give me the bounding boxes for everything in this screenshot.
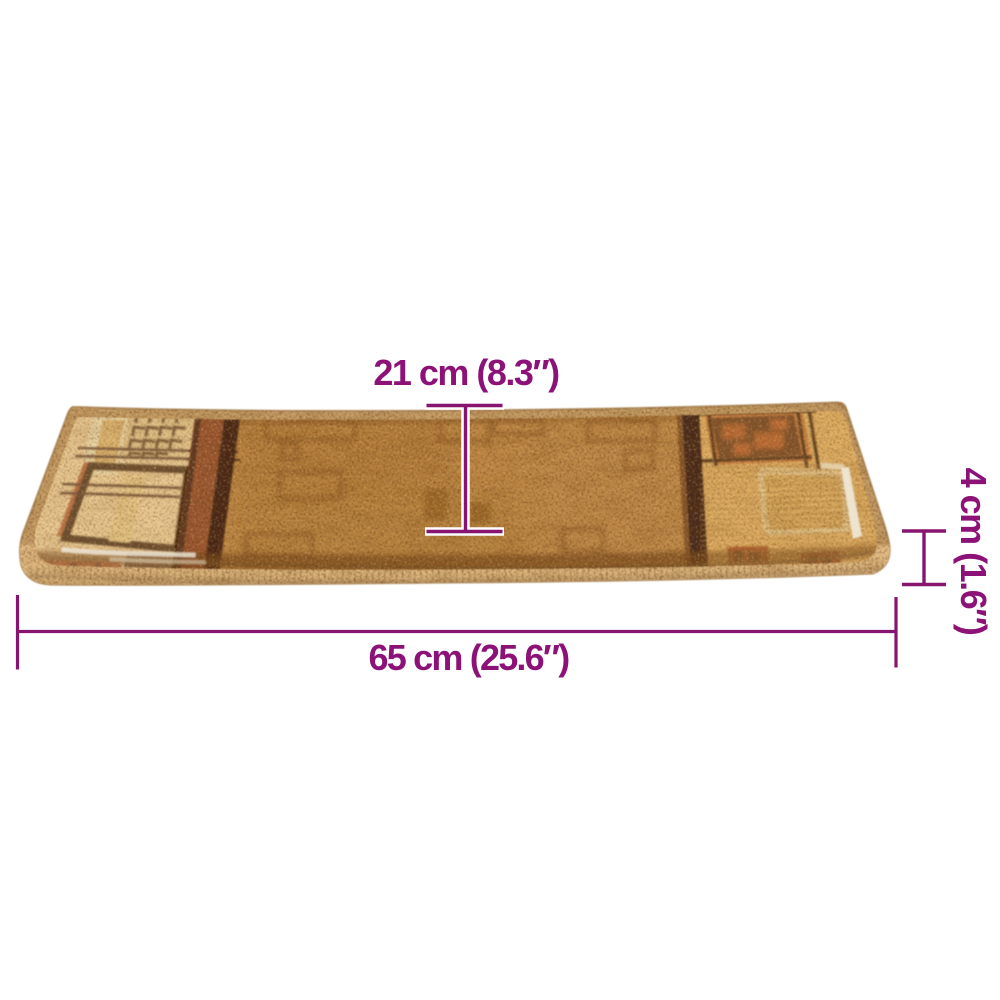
svg-text:4 cm (1.6″): 4 cm (1.6″) bbox=[953, 468, 994, 635]
svg-text:65 cm (25.6″): 65 cm (25.6″) bbox=[369, 637, 570, 678]
svg-text:21 cm (8.3″): 21 cm (8.3″) bbox=[373, 352, 559, 393]
